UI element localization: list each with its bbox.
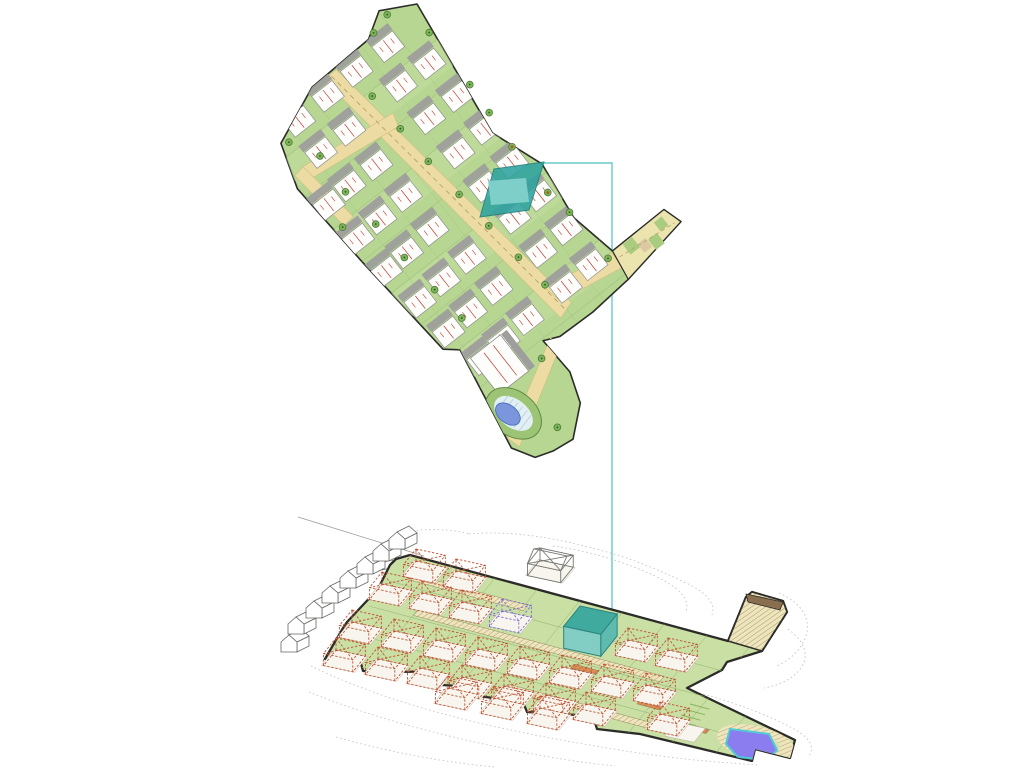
site-plan-view [240, 0, 745, 479]
drawing-canvas [0, 0, 1024, 768]
highlight-plot-house [488, 178, 529, 205]
context-house [389, 526, 417, 549]
contour-line [336, 737, 494, 767]
architectural-plan-image [0, 0, 1024, 768]
axonometric-view [281, 517, 843, 768]
context-box-house-slab [526, 560, 576, 584]
house-annotation-mark [488, 121, 492, 126]
context-box-roof [527, 549, 533, 564]
